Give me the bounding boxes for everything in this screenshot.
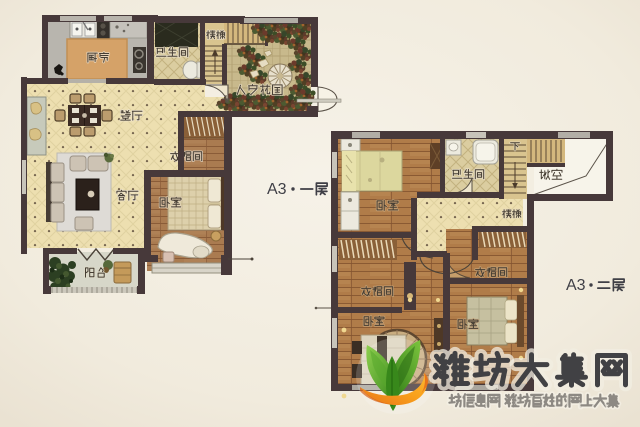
svg-text:A3: A3 [566,277,586,294]
svg-text:A3: A3 [267,181,287,198]
